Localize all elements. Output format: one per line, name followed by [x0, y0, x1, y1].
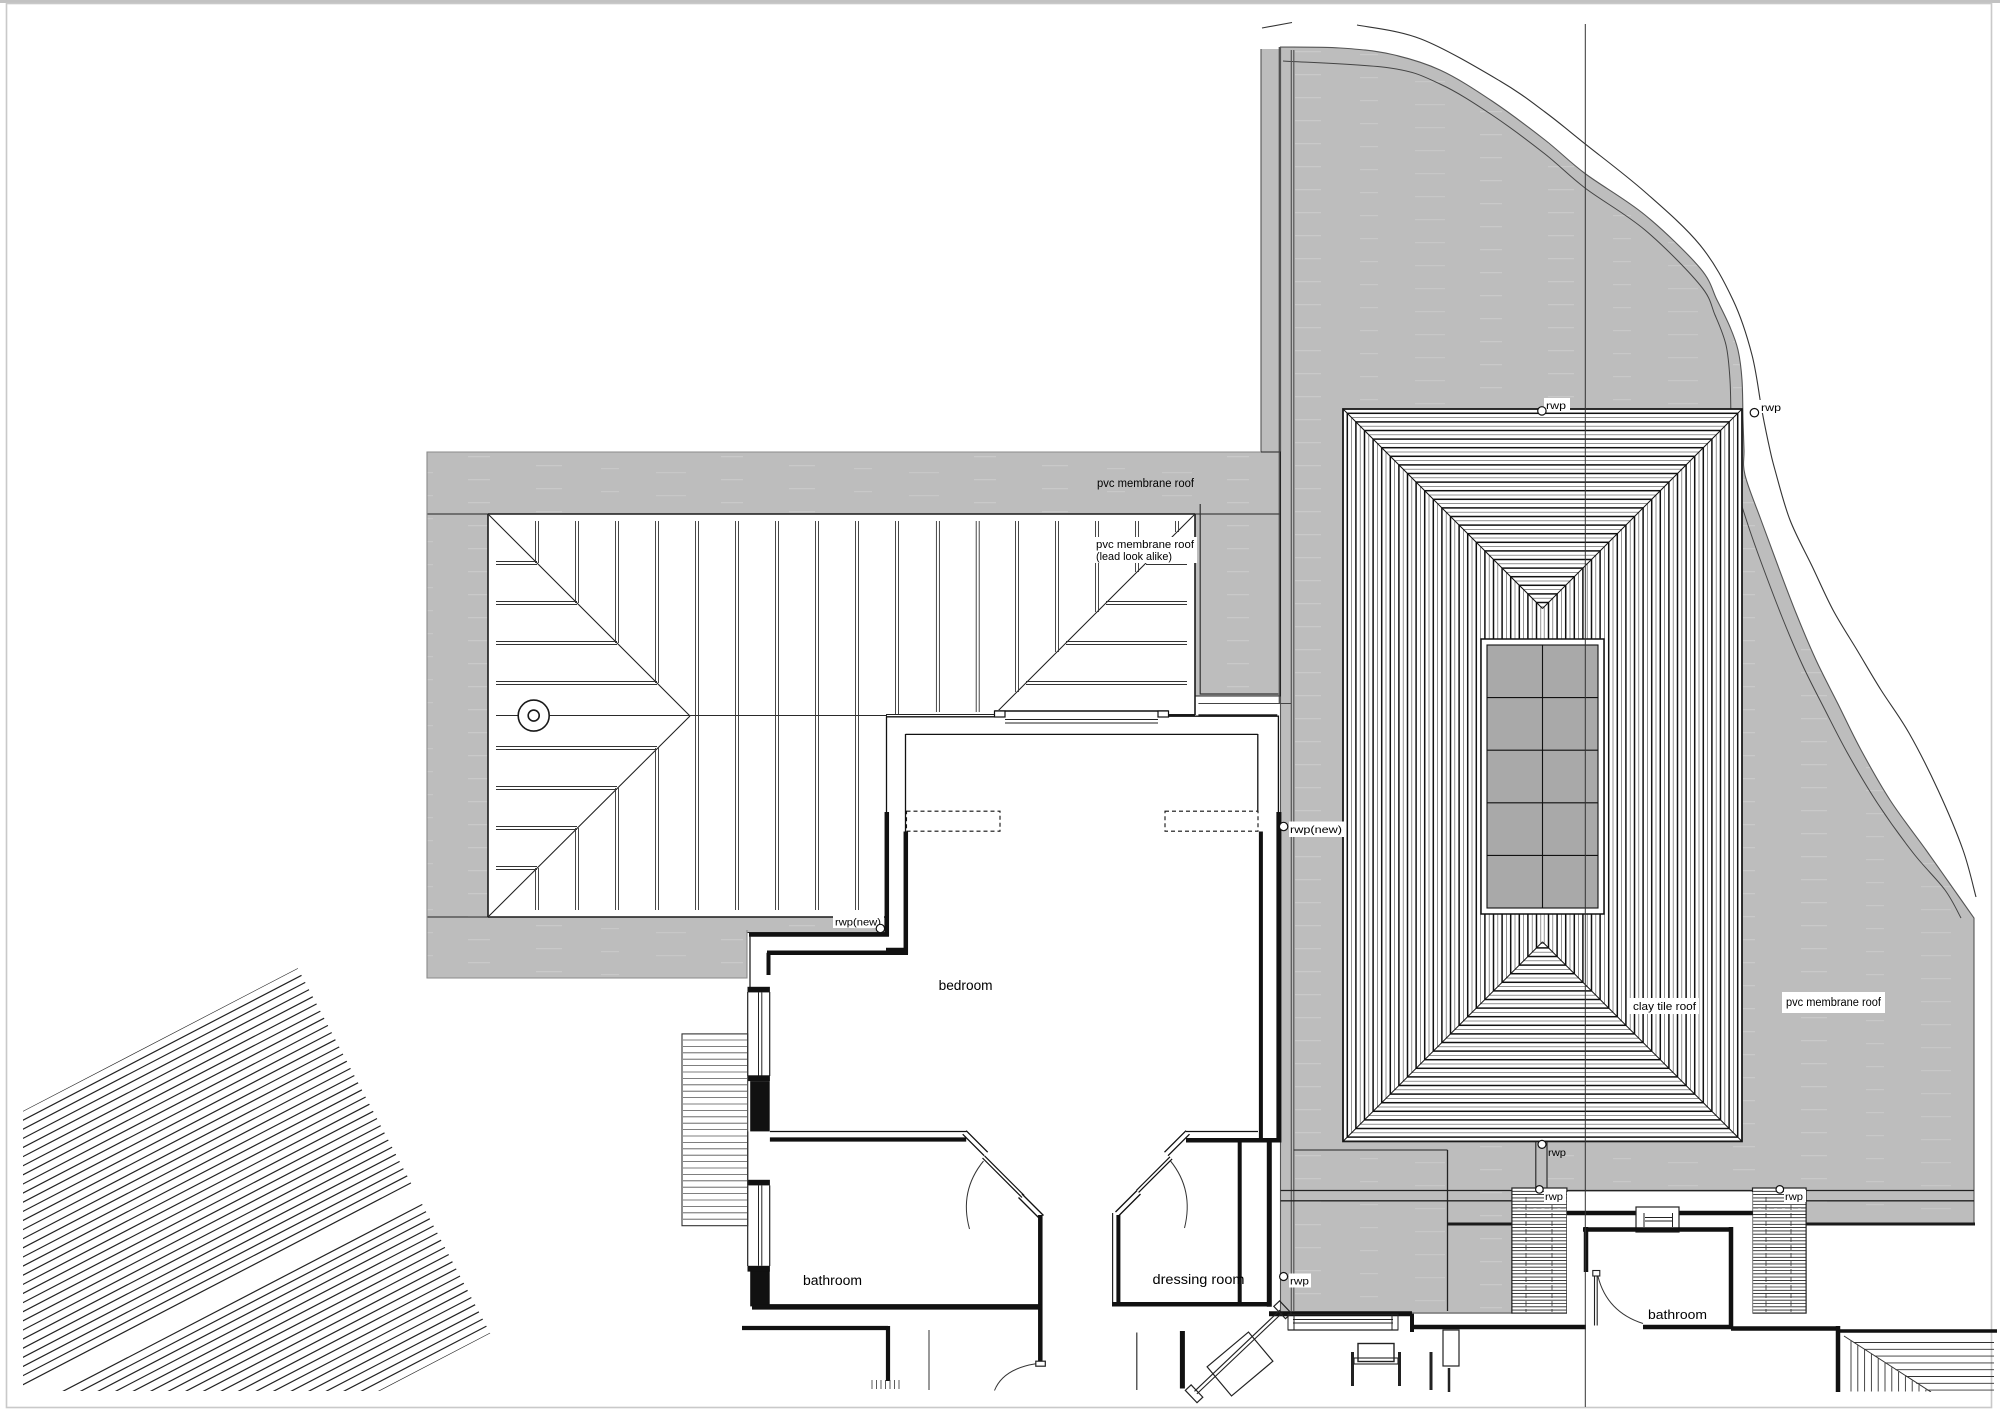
svg-text:rwp: rwp: [1761, 402, 1781, 414]
svg-text:rwp: rwp: [1785, 1192, 1803, 1203]
svg-text:rwp(new): rwp(new): [1290, 825, 1342, 836]
svg-text:bathroom: bathroom: [803, 1273, 862, 1288]
svg-text:bedroom: bedroom: [939, 978, 993, 993]
svg-text:bathroom: bathroom: [1648, 1307, 1707, 1322]
svg-text:pvc membrane roof: pvc membrane roof: [1097, 478, 1195, 490]
svg-text:rwp: rwp: [1546, 400, 1566, 412]
svg-text:pvc membrane roof: pvc membrane roof: [1096, 539, 1195, 551]
svg-text:rwp(new): rwp(new): [835, 917, 881, 929]
svg-text:rwp: rwp: [1290, 1277, 1310, 1288]
svg-text:(lead look alike): (lead look alike): [1096, 551, 1172, 563]
svg-text:rwp: rwp: [1548, 1148, 1566, 1159]
svg-text:dressing room: dressing room: [1153, 1272, 1245, 1287]
svg-text:pvc membrane roof: pvc membrane roof: [1786, 997, 1882, 1009]
svg-text:rwp: rwp: [1545, 1192, 1563, 1203]
svg-text:clay tile roof: clay tile roof: [1633, 1001, 1697, 1013]
